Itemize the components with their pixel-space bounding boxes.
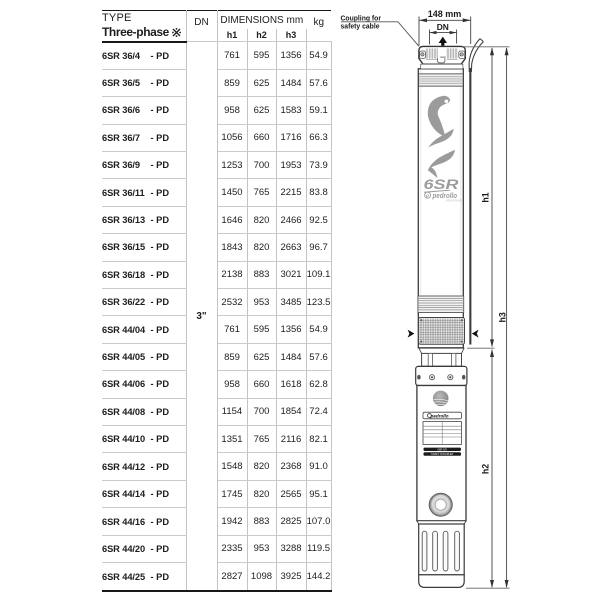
svg-text:pedrollo: pedrollo: [430, 413, 449, 419]
svg-text:h1: h1: [480, 192, 490, 202]
svg-text:SHAFT IN DUPLEX: SHAFT IN DUPLEX: [431, 453, 453, 456]
svg-text:safety cable: safety cable: [341, 22, 380, 31]
svg-text:148 mm: 148 mm: [428, 9, 462, 19]
svg-text:WATER MOVES THE WORLD: WATER MOVES THE WORLD: [446, 198, 462, 202]
svg-text:6SR: 6SR: [424, 177, 459, 192]
svg-text:P: P: [426, 193, 429, 198]
svg-text:h3: h3: [498, 312, 508, 322]
svg-text:h2: h2: [480, 464, 490, 474]
svg-text:6SR X/X: 6SR X/X: [437, 448, 447, 451]
svg-text:DN: DN: [437, 22, 449, 32]
